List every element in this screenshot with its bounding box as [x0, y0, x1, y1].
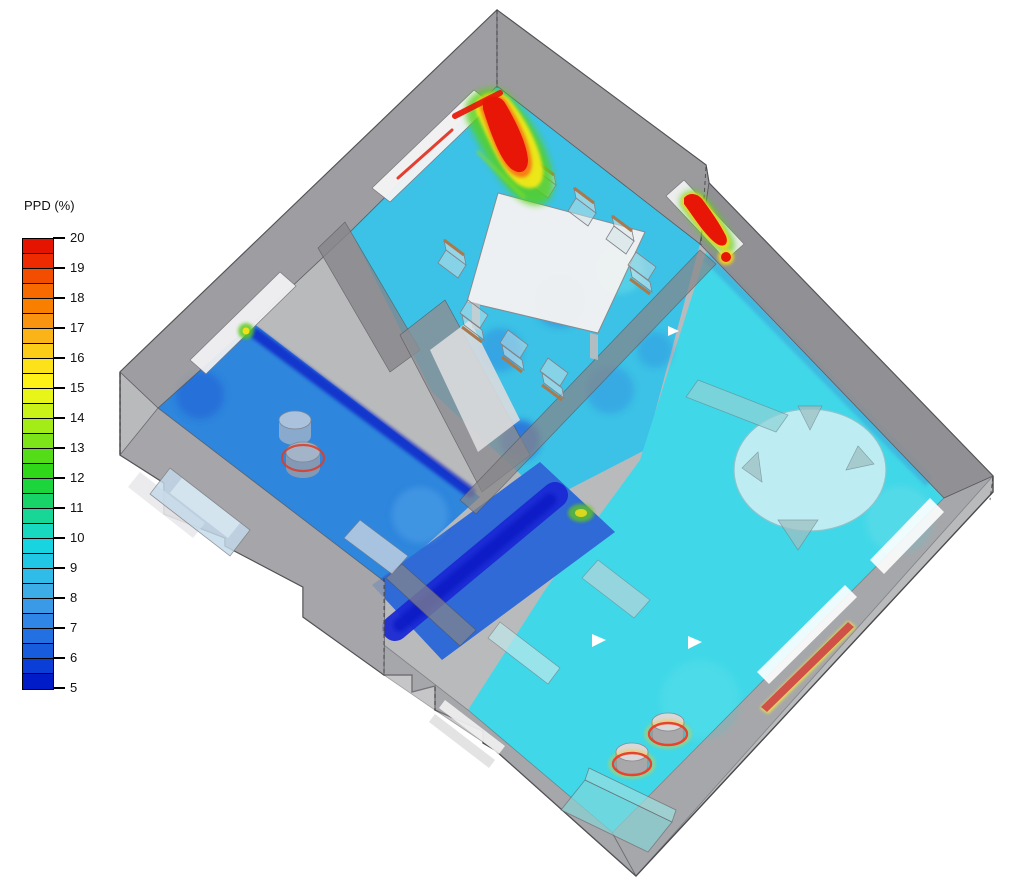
stool [616, 743, 648, 775]
table-leg [590, 333, 598, 360]
model-view[interactable] [0, 0, 1027, 881]
viewport: PPD (%) 201918171615141312111098765 [0, 0, 1027, 881]
bedroom-cylinder [279, 411, 311, 445]
bedroom-corner-spot [238, 323, 254, 339]
stool [652, 713, 684, 745]
building [120, 10, 993, 876]
corridor-green-spot [568, 504, 594, 522]
